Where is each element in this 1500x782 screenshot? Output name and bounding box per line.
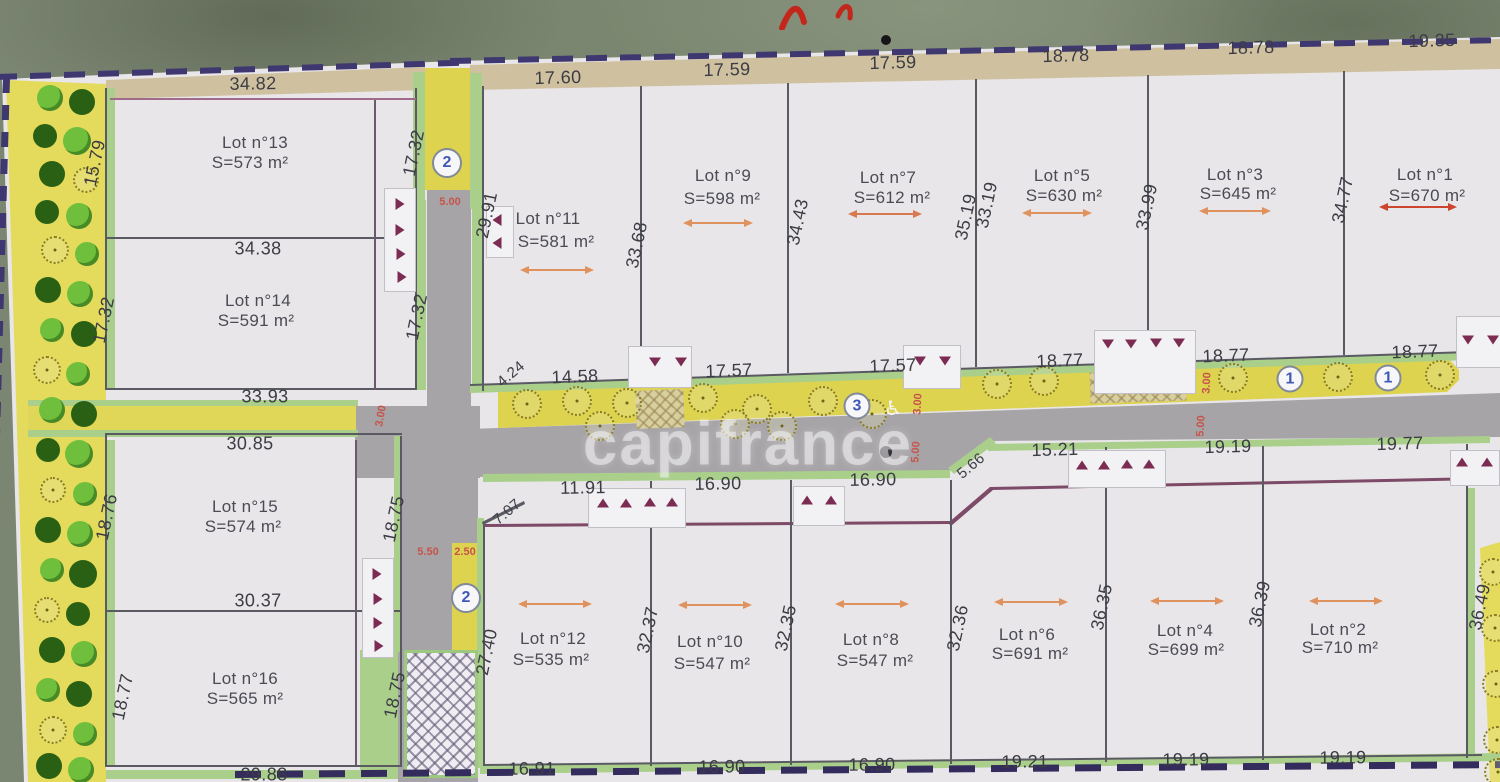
frontage-arrow-icon: [526, 603, 584, 605]
frontage-arrow-icon: [843, 603, 901, 605]
lot-area-label: S=645 m²: [1200, 184, 1277, 204]
dimension-label-rotated: 32.35: [771, 603, 801, 653]
subdivision-plan-photo: 34.8217.6017.5917.5918.7818.7819.3514.58…: [0, 0, 1500, 782]
dimension-label-rotated: 18.75: [380, 670, 410, 720]
frontage-arrow-icon: [856, 213, 914, 215]
lot-label: Lot n°6: [999, 625, 1055, 645]
tree-icon: [71, 401, 97, 427]
dimension-label: 34.38: [234, 239, 281, 260]
tree-icon: [71, 641, 97, 667]
dimension-label: 19.35: [1408, 30, 1456, 52]
marker-triangle-icon: [1173, 339, 1185, 348]
dimension-label: 34.82: [229, 73, 276, 95]
dimension-label: 18.78: [1227, 37, 1275, 59]
frontage-arrow-icon: [1387, 206, 1449, 208]
dimension-label: 30.85: [226, 434, 273, 455]
dimension-label: 18.78: [1042, 45, 1090, 67]
lot-area-label: S=547 m²: [674, 654, 751, 674]
dimension-label: 17.59: [703, 59, 751, 81]
lot-label: Lot n°11: [516, 209, 581, 229]
dimension-label-rotated: 32.37: [633, 605, 663, 655]
dimension-label: 29.88: [240, 765, 287, 782]
lot-area-label: S=573 m²: [212, 153, 289, 173]
tree-icon: [66, 362, 90, 386]
tree-icon: [65, 440, 93, 468]
photo-dot: [881, 35, 891, 45]
dimension-label: 11.91: [560, 477, 606, 499]
frontage-arrow-icon: [1158, 600, 1216, 602]
lot-area-label: S=565 m²: [207, 689, 284, 709]
lot-label: Lot n°16: [212, 669, 278, 689]
annotation-layer: 34.8217.6017.5917.5918.7818.7819.3514.58…: [0, 0, 1500, 782]
tree-icon: [512, 389, 542, 419]
lot-label: Lot n°3: [1207, 165, 1263, 185]
tree-icon: [41, 236, 69, 264]
frontage-arrow-icon: [1030, 212, 1084, 214]
tree-icon: [37, 85, 63, 111]
dimension-label-rotated: 18.76: [92, 492, 122, 542]
dimension-label-rotated: 36.39: [1245, 579, 1275, 629]
circled-number: 2: [432, 148, 462, 178]
tree-icon: [39, 637, 65, 663]
tree-icon: [66, 602, 90, 626]
tree-icon: [73, 722, 97, 746]
width-annotation: 3.00: [1200, 372, 1213, 394]
dimension-label-rotated: 17.32: [89, 295, 119, 345]
tree-icon: [1218, 363, 1248, 393]
marker-triangle-icon: [374, 593, 383, 605]
dimension-label: 19.19: [1204, 436, 1252, 458]
tree-icon: [40, 477, 66, 503]
marker-triangle-icon: [801, 496, 813, 505]
dimension-label-rotated: 18.75: [379, 494, 409, 544]
lot-label: Lot n°15: [212, 497, 278, 517]
dimension-label-rotated: 33.19: [972, 180, 1002, 230]
tree-icon: [1425, 360, 1455, 390]
frontage-arrow-icon: [528, 269, 586, 271]
width-annotation: 2.50: [454, 546, 475, 558]
marker-triangle-icon: [939, 357, 951, 366]
width-annotation: 5.50: [417, 546, 438, 558]
tree-icon: [67, 281, 93, 307]
tree-icon: [982, 369, 1012, 399]
marker-triangle-icon: [649, 358, 661, 367]
circled-number: 2: [451, 583, 481, 613]
dimension-label: 17.59: [869, 52, 917, 74]
lot-label: Lot n°2: [1310, 620, 1366, 640]
lot-area-label: S=699 m²: [1148, 640, 1225, 660]
lot-area-label: S=547 m²: [837, 651, 914, 671]
marker-triangle-icon: [1456, 458, 1468, 467]
tree-icon: [36, 678, 60, 702]
dimension-label-rotated: 36.35: [1087, 582, 1117, 632]
width-annotation: 3.00: [373, 404, 389, 427]
lot-area-label: S=710 m²: [1302, 638, 1379, 658]
lot-area-label: S=691 m²: [992, 644, 1069, 664]
lot-area-label: S=574 m²: [205, 517, 282, 537]
marker-triangle-icon: [914, 357, 926, 366]
marker-triangle-icon: [396, 198, 405, 210]
lot-label: Lot n°13: [222, 133, 288, 153]
dimension-label-rotated: 32.36: [943, 603, 973, 653]
marker-triangle-icon: [1462, 336, 1474, 345]
lot-area-label: S=581 m²: [518, 232, 595, 252]
marker-triangle-icon: [397, 248, 406, 260]
lot-area-label: S=612 m²: [854, 188, 931, 208]
marker-triangle-icon: [375, 640, 384, 652]
lot-label: Lot n°9: [695, 166, 751, 186]
tree-icon: [73, 482, 97, 506]
marker-triangle-icon: [396, 224, 405, 236]
lot-label: Lot n°12: [520, 629, 586, 649]
frontage-arrow-icon: [1317, 600, 1375, 602]
tree-icon: [1484, 758, 1500, 782]
tree-icon: [66, 203, 92, 229]
marker-triangle-icon: [666, 498, 678, 507]
lot-label: Lot n°1: [1397, 165, 1453, 185]
lot-label: Lot n°4: [1157, 621, 1213, 641]
dimension-label-rotated: 34.77: [1328, 175, 1358, 225]
dimension-label: 30.37: [234, 591, 281, 612]
marker-triangle-icon: [373, 568, 382, 580]
tree-icon: [75, 242, 99, 266]
tree-icon: [69, 560, 97, 588]
tree-icon: [39, 716, 67, 744]
dimension-label: 17.57: [705, 360, 753, 383]
tree-icon: [35, 277, 61, 303]
dimension-label: 17.60: [534, 67, 582, 89]
dimension-label-rotated: 17.32: [402, 292, 432, 342]
dimension-label: 16.91: [508, 758, 555, 779]
marker-triangle-icon: [620, 499, 632, 508]
marker-triangle-icon: [1121, 460, 1133, 469]
marker-triangle-icon: [1102, 340, 1114, 349]
frontage-arrow-icon: [691, 222, 745, 224]
dimension-label: 19.19: [1319, 747, 1366, 768]
circled-number: 1: [1277, 366, 1304, 393]
dimension-label: 18.77: [1202, 345, 1250, 368]
lot-label: Lot n°10: [677, 632, 743, 652]
marker-triangle-icon: [1150, 339, 1162, 348]
tree-icon: [1323, 362, 1353, 392]
lot-label: Lot n°5: [1034, 166, 1090, 186]
tree-icon: [69, 89, 95, 115]
tree-icon: [1479, 558, 1500, 586]
lot-area-label: S=591 m²: [218, 311, 295, 331]
dimension-label: 18.77: [1391, 341, 1439, 364]
tree-icon: [34, 597, 60, 623]
tree-icon: [35, 517, 61, 543]
dimension-label: 17.57: [869, 355, 917, 378]
dimension-label: 18.77: [1036, 350, 1084, 373]
dimension-label: 15.21: [1031, 439, 1079, 461]
lot-label: Lot n°14: [225, 291, 291, 311]
marker-triangle-icon: [374, 617, 383, 629]
tree-icon: [36, 753, 62, 779]
tree-icon: [40, 318, 64, 342]
marker-triangle-icon: [1143, 460, 1155, 469]
marker-triangle-icon: [675, 358, 687, 367]
marker-triangle-icon: [493, 237, 502, 249]
dimension-label-rotated: 18.77: [108, 672, 138, 722]
marker-triangle-icon: [493, 214, 502, 226]
dimension-label: 19.19: [1162, 749, 1209, 770]
marker-triangle-icon: [1076, 461, 1088, 470]
marker-triangle-icon: [1098, 461, 1110, 470]
tree-icon: [35, 200, 59, 224]
marker-triangle-icon: [1487, 336, 1499, 345]
dimension-label-rotated: 17.32: [399, 128, 429, 178]
tree-icon: [1483, 726, 1500, 754]
dimension-label-diagonal: 7.07: [490, 496, 525, 529]
width-annotation: 5.00: [1194, 415, 1207, 437]
dimension-label-diagonal: 4.24: [494, 358, 529, 391]
dimension-label-rotated: 27.40: [472, 627, 502, 677]
marker-triangle-icon: [1125, 340, 1137, 349]
tree-icon: [67, 521, 93, 547]
marker-triangle-icon: [1481, 458, 1493, 467]
lot-area-label: S=535 m²: [513, 650, 590, 670]
utility-marker-box: [628, 346, 692, 388]
dimension-label: 19.21: [1001, 751, 1048, 772]
dimension-label: 16.90: [698, 756, 745, 777]
dimension-label-rotated: 33.68: [622, 220, 652, 270]
lot-area-label: S=598 m²: [684, 189, 761, 209]
width-annotation: 3.00: [911, 393, 924, 415]
marker-triangle-icon: [825, 496, 837, 505]
tree-icon: [1482, 670, 1500, 698]
watermark: capifrance: [583, 409, 913, 480]
lot-label: Lot n°7: [860, 168, 916, 188]
tree-icon: [40, 558, 64, 582]
handwriting-icon: [758, 0, 878, 30]
frontage-arrow-icon: [686, 604, 744, 606]
wheelchair-icon: ♿: [884, 396, 902, 420]
dimension-label: 19.77: [1376, 433, 1424, 455]
dimension-label: 16.90: [848, 754, 895, 775]
tree-icon: [66, 681, 92, 707]
width-annotation: 5.00: [439, 196, 460, 208]
dimension-label: 14.58: [551, 366, 599, 389]
tree-icon: [33, 124, 57, 148]
tree-icon: [39, 161, 65, 187]
lot-area-label: S=630 m²: [1026, 186, 1103, 206]
utility-marker-box: [793, 486, 845, 526]
dimension-label: 33.93: [241, 387, 288, 408]
tree-icon: [68, 757, 94, 782]
dimension-label-rotated: 33.99: [1132, 182, 1162, 232]
circled-number: 1: [1375, 365, 1402, 392]
dimension-label-diagonal: 5.66: [954, 450, 989, 483]
tree-icon: [36, 438, 60, 462]
lot-label: Lot n°8: [843, 630, 899, 650]
dimension-label-rotated: 34.43: [783, 197, 813, 247]
utility-marker-box: [1450, 450, 1500, 486]
tree-icon: [39, 397, 65, 423]
frontage-arrow-icon: [1207, 210, 1263, 212]
marker-triangle-icon: [398, 271, 407, 283]
tree-icon: [33, 356, 61, 384]
marker-triangle-icon: [644, 498, 656, 507]
frontage-arrow-icon: [1002, 601, 1060, 603]
marker-triangle-icon: [597, 499, 609, 508]
